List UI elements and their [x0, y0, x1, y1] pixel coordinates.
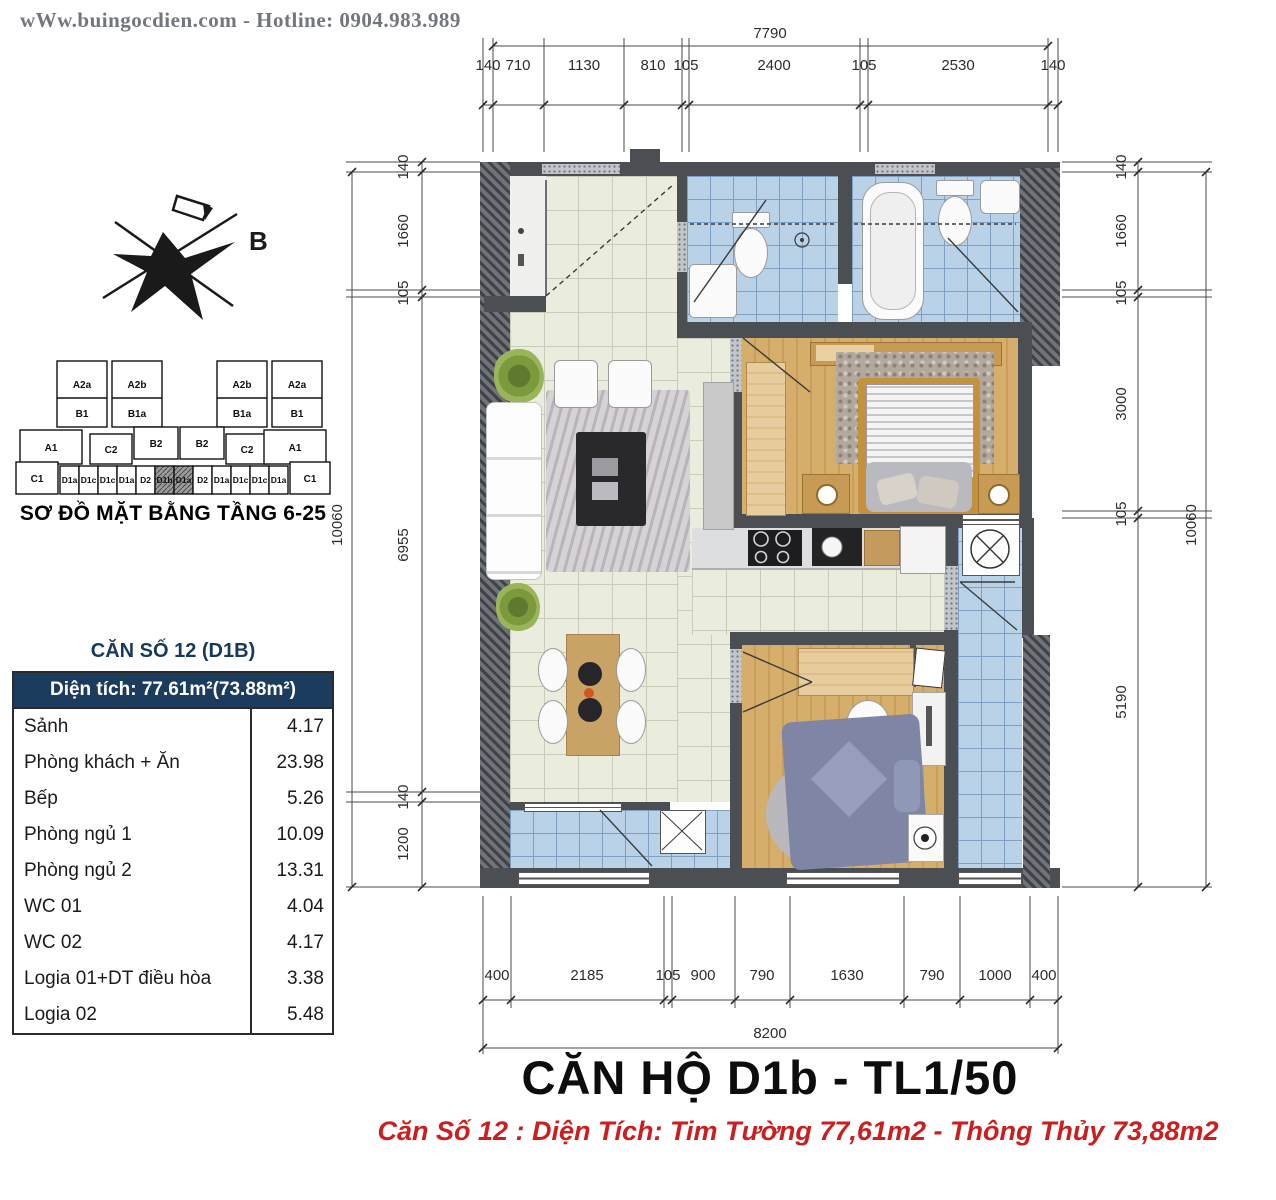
area-table-header: Diện tích: 77.61m²(73.88m²)	[14, 673, 332, 709]
keyplan-unit: D1c	[252, 475, 268, 485]
dim-bottom-seg: 400	[1016, 968, 1072, 984]
dim-right-seg: 105	[1114, 263, 1130, 323]
compass-north-icon: B	[85, 178, 285, 343]
room-label: WC 01	[14, 896, 250, 918]
keyplan-unit: D2	[197, 475, 208, 485]
wall-top-bump	[630, 149, 660, 163]
dim-bottom-overall: 8200	[720, 1026, 820, 1042]
room-label: Logia 01+DT điều hòa	[14, 968, 250, 990]
room-label: Logia 02	[14, 1004, 250, 1026]
keyplan-diagram: A2a B1 A2b B1a A2b B1a A2a B1 A1 C2 B2 B…	[12, 358, 334, 500]
dim-bottom-seg: 790	[904, 968, 960, 984]
dim-left-seg: 1660	[396, 201, 412, 261]
table-row: Logia 01+DT điều hòa3.38	[14, 961, 332, 997]
dim-left-seg: 6955	[396, 515, 412, 575]
dim-bottom-seg: 2185	[559, 968, 615, 984]
table-row: Bếp5.26	[14, 781, 332, 817]
apartment-subtitle: Căn Số 12 : Diện Tích: Tim Tường 77,61m2…	[320, 1116, 1276, 1147]
room-label: Phòng ngủ 2	[14, 860, 250, 882]
table-row: Phòng ngủ 213.31	[14, 853, 332, 889]
flyer-page: wWw.buingocdien.com - Hotline: 0904.983.…	[0, 0, 1276, 1200]
table-row: WC 024.17	[14, 925, 332, 961]
dim-right-seg: 5190	[1114, 672, 1130, 732]
keyplan-unit-highlighted: D1b	[156, 475, 172, 485]
dim-top-seg: 105	[836, 58, 892, 74]
dim-right-seg: 3000	[1114, 374, 1130, 434]
keyplan-cell: C1	[31, 474, 44, 485]
dim-top-seg: 105	[658, 58, 714, 74]
dim-bottom-seg: 1000	[967, 968, 1023, 984]
room-area: 3.38	[250, 961, 332, 997]
dim-right-seg: 105	[1114, 484, 1130, 544]
keyplan-cell: B1a	[233, 409, 252, 420]
dim-right-seg: 140	[1114, 137, 1130, 197]
table-row: Sảnh4.17	[14, 709, 332, 745]
keyplan-cell: A2b	[128, 380, 147, 391]
table-row: Logia 025.48	[14, 997, 332, 1033]
dim-top-seg: 1130	[556, 58, 612, 74]
table-row: WC 014.04	[14, 889, 332, 925]
room-area: 10.09	[250, 817, 332, 853]
dim-left-seg: 105	[396, 263, 412, 323]
room-area: 13.31	[250, 853, 332, 889]
dim-left-seg: 1200	[396, 814, 412, 874]
keyplan-cell: B1	[291, 409, 304, 420]
keyplan-unit: D1a	[62, 475, 78, 485]
room-area: 4.17	[250, 925, 332, 961]
dim-right-overall: 10060	[1184, 495, 1200, 555]
keyplan-unit: D1a	[119, 475, 135, 485]
keyplan-cell: A1	[289, 443, 302, 454]
keyplan-cell: C2	[105, 445, 118, 456]
compass-label: B	[249, 226, 268, 256]
keyplan-cell: A2a	[73, 380, 92, 391]
keyplan-cell: A2a	[288, 380, 307, 391]
apartment-title: CĂN HỘ D1b - TL1/50	[440, 1050, 1100, 1105]
keyplan-unit: D1a	[271, 475, 287, 485]
keyplan-unit: D1c	[100, 475, 116, 485]
plan-symbols-overlay	[480, 162, 1060, 888]
dim-top-seg: 710	[490, 58, 546, 74]
keyplan-cell: C1	[304, 474, 317, 485]
table-row: Phòng ngủ 110.09	[14, 817, 332, 853]
keyplan-cell: C2	[241, 445, 254, 456]
table-row: Phòng khách + Ăn23.98	[14, 745, 332, 781]
room-area: 23.98	[250, 745, 332, 781]
dim-bottom-seg: 400	[469, 968, 525, 984]
dim-top-seg: 2400	[746, 58, 802, 74]
keyplan-unit-highlighted: D1a	[176, 475, 192, 485]
floor-plan	[480, 162, 1060, 888]
dim-left-overall: 10060	[330, 495, 346, 555]
keyplan-cell: B1a	[128, 409, 147, 420]
room-area: 5.26	[250, 781, 332, 817]
area-table: CĂN SỐ 12 (D1B) Diện tích: 77.61m²(73.88…	[12, 640, 334, 1035]
keyplan-cell: B2	[150, 439, 163, 450]
keyplan-cell: B1	[76, 409, 89, 420]
keyplan-unit: D1a	[214, 475, 230, 485]
dim-top-overall: 7790	[720, 26, 820, 42]
keyplan-cell: B2	[196, 439, 209, 450]
dim-top-seg: 2530	[930, 58, 986, 74]
dim-bottom-seg: 790	[734, 968, 790, 984]
room-label: Bếp	[14, 788, 250, 810]
room-area: 5.48	[250, 997, 332, 1033]
keyplan-cell: A1	[45, 443, 58, 454]
room-area: 4.04	[250, 889, 332, 925]
dim-right-seg: 1660	[1114, 201, 1130, 261]
dim-bottom-seg: 900	[675, 968, 731, 984]
keyplan-unit: D1c	[233, 475, 249, 485]
keyplan-unit: D1c	[81, 475, 97, 485]
keyplan-cell: A2b	[233, 380, 252, 391]
room-area: 4.17	[250, 709, 332, 745]
room-label: WC 02	[14, 932, 250, 954]
dim-left-seg: 140	[396, 137, 412, 197]
area-table-title: CĂN SỐ 12 (D1B)	[12, 640, 334, 663]
dim-bottom-seg: 1630	[819, 968, 875, 984]
dim-top-seg: 140	[1025, 58, 1081, 74]
keyplan-unit: D2	[140, 475, 151, 485]
room-label: Phòng ngủ 1	[14, 824, 250, 846]
room-label: Sảnh	[14, 716, 250, 738]
room-label: Phòng khách + Ăn	[14, 752, 250, 774]
